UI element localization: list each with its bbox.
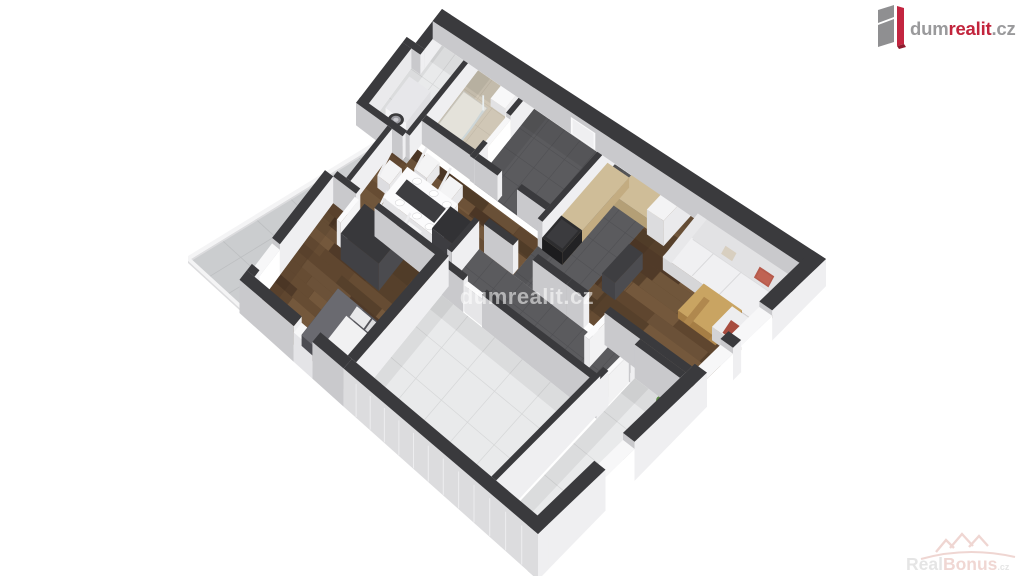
svg-text:dumrealit.cz: dumrealit.cz — [910, 18, 1016, 39]
svg-text:RealBonus.cz: RealBonus.cz — [906, 554, 1010, 574]
svg-text:dumrealit.cz: dumrealit.cz — [460, 284, 594, 309]
